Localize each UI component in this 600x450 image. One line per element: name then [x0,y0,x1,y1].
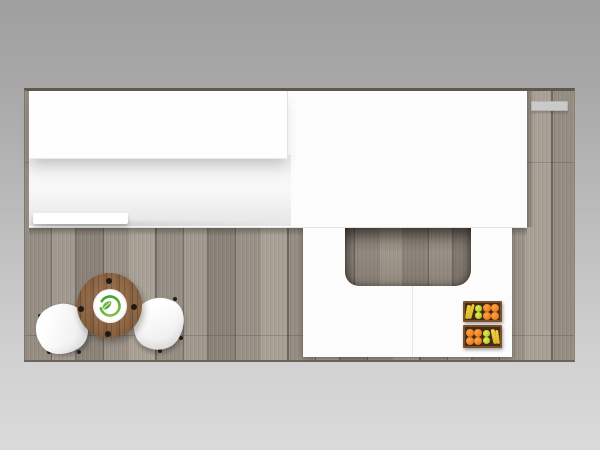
booth-render [0,0,600,450]
apple-icon [483,330,490,337]
banana-icon [495,330,500,344]
orange-icon [483,312,491,320]
orange-icon [466,337,474,345]
apple-icon [475,312,482,319]
canopy-panel-back-left [29,91,288,159]
produce-crate-bottom [463,325,502,348]
orange-icon [491,312,499,320]
shelf-ledge [33,213,128,224]
eco-leaf-logo-icon [97,293,123,319]
counter-floor-cutout [345,227,471,286]
counter-panel-seam [412,286,413,357]
orange-icon [474,337,482,345]
orange-icon [474,329,482,337]
cutout-shadow-tint [345,227,471,286]
apple-icon [475,305,482,312]
table-knob [131,304,137,310]
chair-foot [179,336,183,340]
canopy-side-shadow [527,91,534,227]
orange-icon [466,329,474,337]
orange-icon [483,304,491,312]
chair-foot [77,350,81,354]
table-knob [106,278,112,284]
table-knob [78,306,84,312]
apple-icon [483,337,490,344]
wall-shelf [531,101,568,111]
table-knob [105,331,111,337]
produce-crate-top [463,301,502,322]
orange-icon [491,304,499,312]
